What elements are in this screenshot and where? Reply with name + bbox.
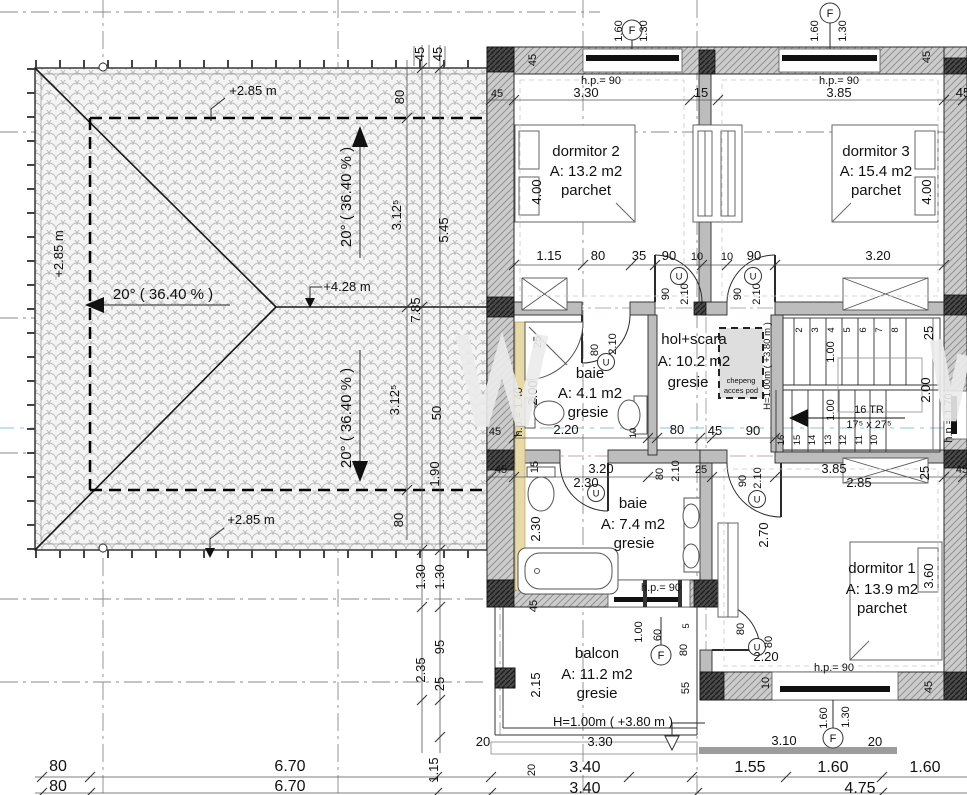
wardrobe-dormitor2 xyxy=(522,278,567,310)
dim-label: 2.85 xyxy=(846,475,871,490)
dim-label: 3.12⁵ xyxy=(387,385,402,416)
step-number: 7 xyxy=(874,327,885,332)
room-name: hol+scara xyxy=(661,331,727,348)
dim-label: 1.30 xyxy=(837,20,849,41)
dim-label: 10 xyxy=(691,251,703,263)
step-number: 6 xyxy=(858,327,869,332)
dim-label: 7.85 xyxy=(408,297,423,322)
dim-label: 3.30 xyxy=(587,734,612,749)
dim-label: 90 xyxy=(732,288,744,300)
room-name: dormitor 1 xyxy=(848,560,916,577)
dim-label: 1.55 xyxy=(734,759,765,776)
room-area: A: 11.2 m2 xyxy=(561,666,632,683)
sink-double xyxy=(683,498,700,572)
roof-level-left: +2.85 m xyxy=(51,230,66,277)
step-number: 15 xyxy=(792,435,803,446)
room-area: A: 10.2 m2 xyxy=(658,353,731,370)
dim-label: 6.70 xyxy=(274,758,305,775)
dim-label: 25 xyxy=(921,326,936,340)
dim-label: 3.10 xyxy=(771,733,796,748)
dim-label: 2.10 xyxy=(607,333,619,354)
bathtub xyxy=(518,548,618,594)
window-marker-f1: F xyxy=(629,25,636,37)
stair-treads-label: 16 TR xyxy=(854,404,884,416)
dim-label: 1.30 xyxy=(638,20,650,41)
dim-label: 2.30 xyxy=(573,475,598,490)
roof-slope-up: 20° ( 36.40 % ) xyxy=(338,147,355,247)
sill-label: h.p.= 90 xyxy=(814,662,854,674)
sill-label: h.p.= 90 xyxy=(581,75,621,87)
dim-label: 80 xyxy=(589,344,601,356)
dim-label: 1.60 xyxy=(809,20,821,41)
dim-label: 2.15 xyxy=(528,672,543,697)
dim-label: 1.60 xyxy=(818,707,830,728)
wardrobe-dormitor3 xyxy=(843,278,928,310)
room-area: A: 13.9 m2 xyxy=(846,581,919,598)
step-number: 3 xyxy=(810,327,821,332)
dim-label: 1.00 xyxy=(825,341,837,362)
dim-label: 20 xyxy=(868,734,882,749)
dim-label: 2.20 xyxy=(753,649,778,664)
dim-label: 80 xyxy=(391,513,406,527)
step-number: 5 xyxy=(842,327,853,332)
dim-label: 2.30 xyxy=(528,516,543,541)
dim-label: 5.45 xyxy=(436,217,451,242)
step-number: 10 xyxy=(869,435,880,446)
room-name: balcon xyxy=(575,645,619,662)
dim-label: 2.10 xyxy=(679,283,691,304)
roof-slope-down: 20° ( 36.40 % ) xyxy=(338,368,355,468)
dim-label: 3.30 xyxy=(573,85,598,100)
staircase[interactable] xyxy=(776,318,940,452)
dim-label: 45 xyxy=(956,85,967,100)
room-baie-mare-label: baie A: 7.4 m2 gresie xyxy=(601,495,665,552)
dim-label: 25 xyxy=(432,677,447,691)
door-marker-u2: U xyxy=(750,272,757,283)
attic-hatch-note: H=1.00m ( +3.80 m ) xyxy=(762,322,773,410)
dim-label: 80 xyxy=(392,90,407,104)
room-finish: gresie xyxy=(568,404,609,421)
step-number: 13 xyxy=(823,435,834,446)
window-marker-f4: F xyxy=(658,650,665,662)
room-name: baie xyxy=(576,365,604,382)
dim-label: 45 xyxy=(412,47,427,61)
room-baie-mica-label: baie A: 4.1 m2 gresie xyxy=(558,365,622,421)
sill-label: h.p.= 90 xyxy=(641,582,681,594)
dim-label: 3.85 xyxy=(821,461,846,476)
dim-label: 1.30 xyxy=(840,706,852,727)
dim-label: 3.20 xyxy=(588,461,613,476)
step-number: 4 xyxy=(826,327,837,332)
balcony-height-note: H=1.00m ( +3.80 m ) xyxy=(553,714,673,729)
room-name: baie xyxy=(619,495,647,512)
dim-label: 80 xyxy=(591,248,605,263)
dim-label: 25 xyxy=(917,466,932,480)
dim-label: 3.85 xyxy=(826,85,851,100)
dim-label: 45 xyxy=(495,464,507,476)
window-marker-f3: F xyxy=(830,733,837,745)
dim-label: 1.15 xyxy=(536,248,561,263)
dim-label: 6.70 xyxy=(274,778,305,795)
dim-label: 1.15 xyxy=(426,757,441,782)
door-marker-u4: U xyxy=(593,489,600,500)
window-dormitor2 xyxy=(583,49,682,72)
dim-label: 1.00 xyxy=(633,621,645,642)
dim-label: 45 xyxy=(956,464,967,476)
closet-between-bedrooms xyxy=(693,125,742,222)
dim-label: 3.40 xyxy=(569,780,600,795)
dim-label: 1.00 xyxy=(825,399,837,420)
dim-label: 3.40 xyxy=(569,759,600,776)
balcony-pillar xyxy=(495,668,515,688)
dim-label: 80 xyxy=(654,468,666,480)
dim-label: 3.12⁵ xyxy=(389,200,404,231)
window-dormitor3 xyxy=(779,49,880,72)
dim-label: 90 xyxy=(747,248,761,263)
room-name: dormitor 2 xyxy=(552,143,620,160)
dim-label: 5 xyxy=(681,623,692,628)
room-finish: gresie xyxy=(668,374,709,391)
window-marker-f2: F xyxy=(827,8,834,20)
dim-label: 2.35 xyxy=(413,657,428,682)
step-number: 16 xyxy=(776,435,787,446)
dim-label: 45 xyxy=(491,88,503,100)
dim-label: 1.60 xyxy=(909,759,940,776)
window-dormitor1 xyxy=(772,672,898,700)
dim-label: 10 xyxy=(760,677,772,689)
dim-label: 90 xyxy=(662,248,676,263)
floor-plan-drawing: F F F F U U U U U U dormitor 2 A: 13.2 m… xyxy=(0,0,967,795)
dim-label: 45 xyxy=(923,681,935,693)
room-area: A: 15.4 m2 xyxy=(840,163,913,180)
dim-label: 45 xyxy=(528,600,540,612)
dim-label: 1.60 xyxy=(817,759,848,776)
dim-label: 80 xyxy=(670,422,684,437)
room-finish: gresie xyxy=(614,535,655,552)
dim-label: 80 xyxy=(735,623,747,635)
dim-label: 90 xyxy=(737,475,749,487)
attic-hatch-label: acces pod xyxy=(724,386,758,395)
step-number: 11 xyxy=(854,435,865,445)
dim-label: 80 xyxy=(678,644,690,656)
dim-label: 2.10 xyxy=(670,460,682,481)
dim-label: 80 xyxy=(49,758,67,775)
dim-label: 25 xyxy=(695,464,707,476)
room-finish: parchet xyxy=(857,600,908,617)
dim-label: 2.00 xyxy=(918,377,933,402)
room-area: A: 7.4 m2 xyxy=(601,516,665,533)
dim-label: 45 xyxy=(489,426,501,438)
dim-label: 15 xyxy=(694,85,708,100)
room-finish: parchet xyxy=(561,182,612,199)
step-number: 8 xyxy=(890,327,901,332)
roof-slope-left: 20° ( 36.40 % ) xyxy=(113,286,213,303)
dim-label: 80 xyxy=(49,778,67,795)
dim-label: 4.00 xyxy=(919,179,934,204)
door-marker-u5: U xyxy=(754,495,761,506)
dim-label: 1.90 xyxy=(427,461,442,486)
plan-svg: F F F F U U U U U U dormitor 2 A: 13.2 m… xyxy=(0,0,967,795)
dim-label: 90 xyxy=(660,288,672,300)
dim-label: 1.30 xyxy=(432,564,447,589)
step-number: 14 xyxy=(807,435,818,446)
dim-label: 45 xyxy=(527,54,539,66)
step-number: 12 xyxy=(838,435,849,446)
room-area: A: 13.2 m2 xyxy=(550,163,623,180)
dim-label: 45 xyxy=(708,423,722,438)
room-balcon-label: balcon A: 11.2 m2 gresie xyxy=(561,645,632,702)
roof-level-ridge: +4.28 m xyxy=(323,279,370,294)
step-number: 2 xyxy=(794,327,805,332)
dim-label: 4.75 xyxy=(844,780,875,795)
dim-label: 2.10 xyxy=(751,283,763,304)
room-area: A: 4.1 m2 xyxy=(558,385,622,402)
closet-dormitor1-west xyxy=(718,523,738,617)
door-marker-u1: U xyxy=(676,272,683,283)
stair-tread-size: 17⁵ x 27⁵ xyxy=(846,419,891,431)
dim-label: 35 xyxy=(632,248,646,263)
dim-label: 55 xyxy=(680,682,692,694)
dim-label: 2.70 xyxy=(756,522,771,547)
dim-label: 1.60 xyxy=(613,20,625,41)
dim-label: 10 xyxy=(628,428,639,439)
dim-label: 90 xyxy=(746,423,760,438)
dim-label: 20 xyxy=(526,764,538,776)
dim-label: 60 xyxy=(652,629,664,641)
dim-label: 80 xyxy=(763,636,775,648)
dim-label: 95 xyxy=(432,640,447,654)
room-finish: parchet xyxy=(851,182,902,199)
dim-label: 3.60 xyxy=(921,563,936,588)
room-finish: gresie xyxy=(577,685,618,702)
dim-label: 2.20 xyxy=(553,422,578,437)
dim-label: 20 xyxy=(476,734,490,749)
sill-label: h.p.= 90 xyxy=(819,75,859,87)
dim-label: 45 xyxy=(921,51,933,63)
attic-hatch-label: chepeng xyxy=(727,376,756,385)
dim-label: 1.30 xyxy=(413,564,428,589)
dim-label: 4.00 xyxy=(529,179,544,204)
dim-label: 50 xyxy=(429,406,444,420)
dim-label: 45 xyxy=(430,47,445,61)
dim-label: 3.20 xyxy=(865,248,890,263)
dim-label: 10 xyxy=(721,251,733,263)
room-name: dormitor 3 xyxy=(842,143,910,160)
roof-level-top: +2.85 m xyxy=(229,83,276,98)
roof-level-bottom: +2.85 m xyxy=(227,512,274,527)
dim-label: 2.10 xyxy=(752,467,764,488)
dim-label: 15 xyxy=(529,461,541,473)
